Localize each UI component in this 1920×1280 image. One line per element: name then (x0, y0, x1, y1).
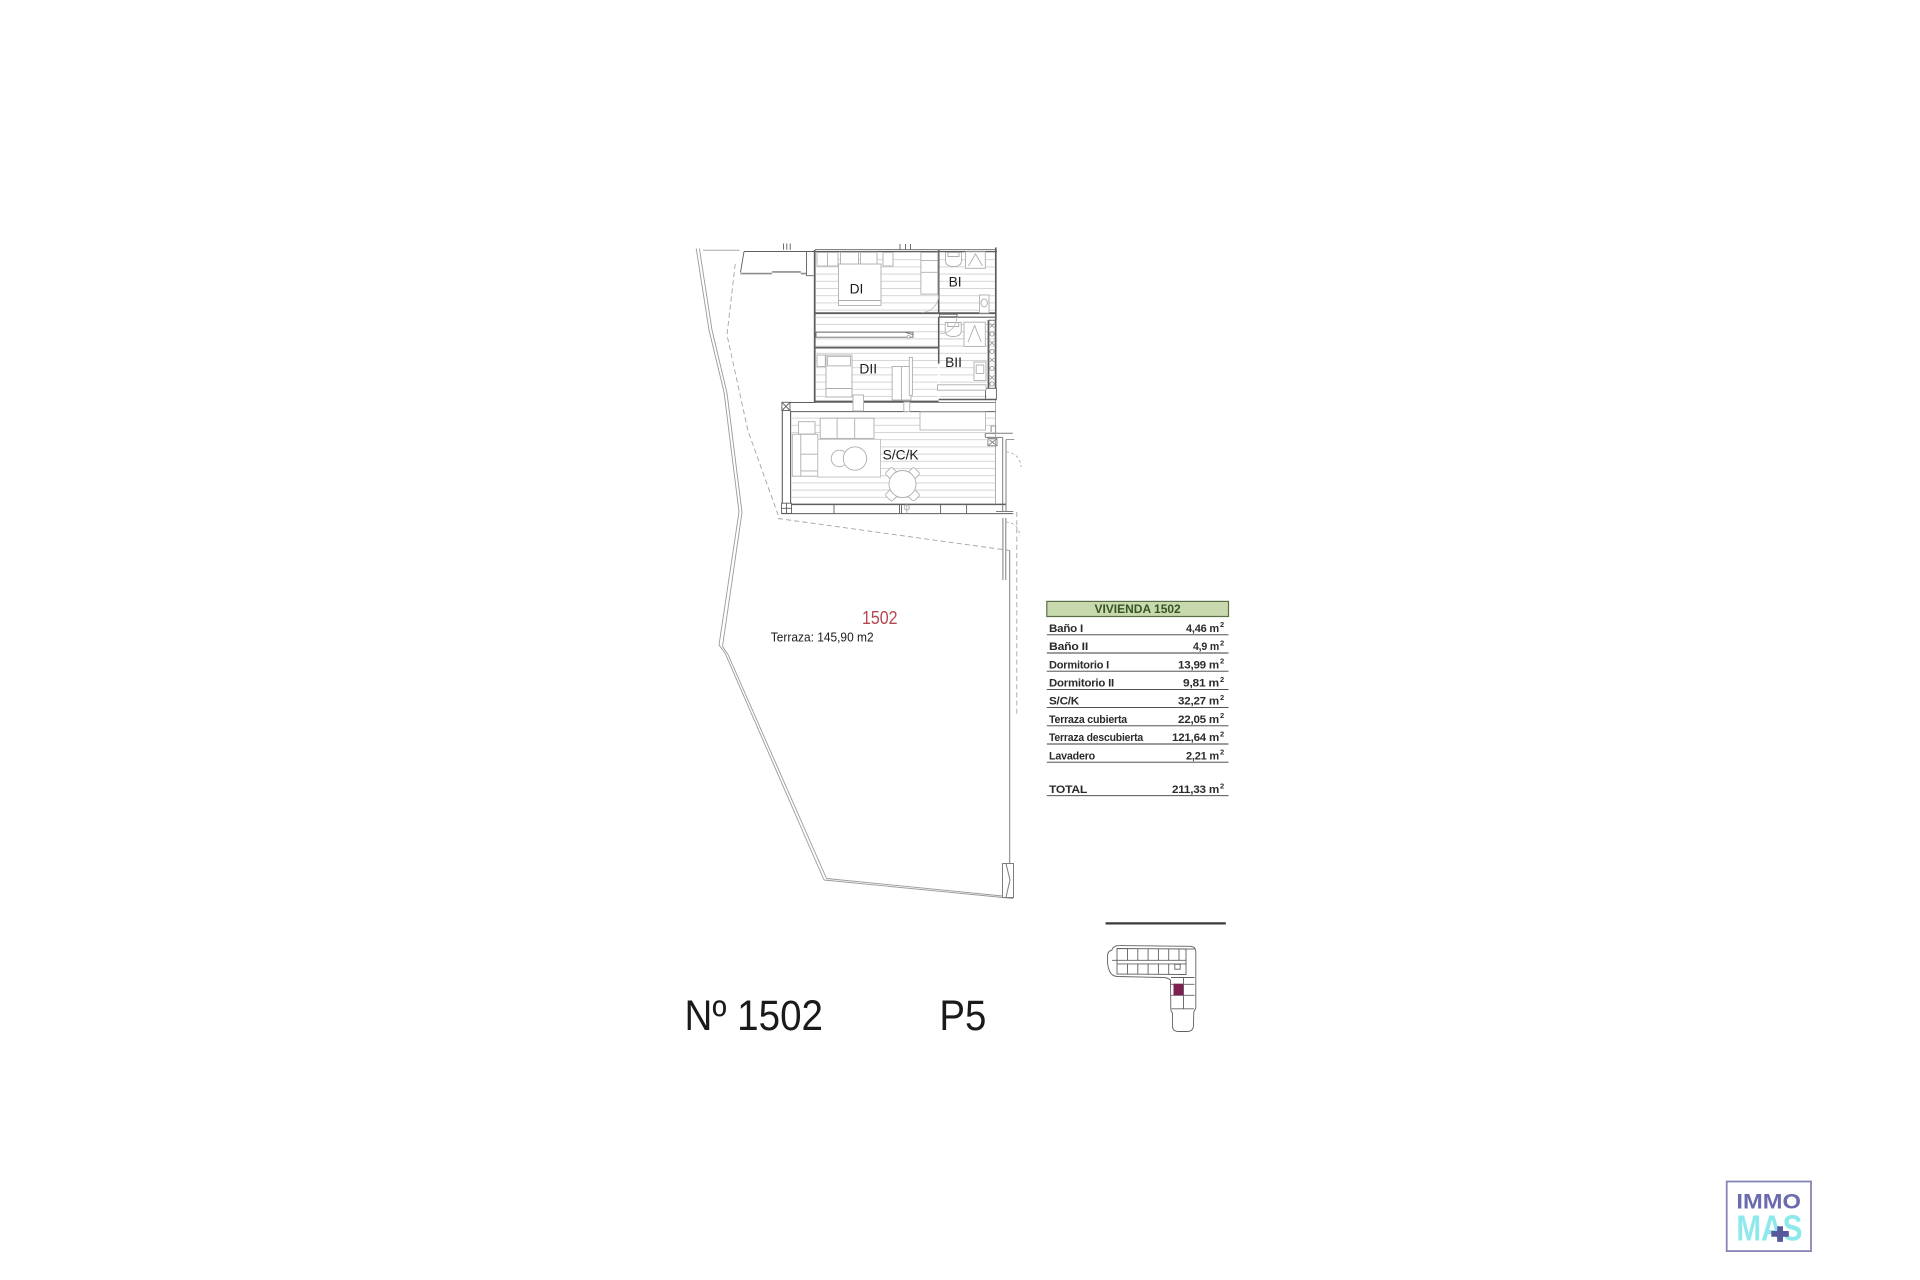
svg-text:VIVIENDA 1502: VIVIENDA 1502 (1094, 602, 1181, 616)
svg-text:1502: 1502 (862, 607, 898, 628)
svg-text:DI: DI (850, 281, 864, 296)
svg-text:2: 2 (1220, 729, 1224, 738)
svg-text:Dormitorio I: Dormitorio I (1049, 659, 1109, 671)
svg-text:Terraza cubierta: Terraza cubierta (1049, 714, 1128, 726)
svg-text:2: 2 (1220, 782, 1224, 791)
svg-text:2: 2 (1220, 711, 1224, 720)
svg-text:Baño II: Baño II (1049, 641, 1088, 653)
svg-text:13,99 m: 13,99 m (1178, 659, 1219, 671)
svg-text:2: 2 (1220, 693, 1224, 702)
svg-text:2: 2 (1220, 638, 1224, 647)
svg-text:2: 2 (1220, 620, 1224, 629)
svg-text:BII: BII (945, 355, 962, 370)
svg-text:S/C/K: S/C/K (883, 448, 920, 463)
svg-text:Nº 1502: Nº 1502 (685, 992, 824, 1040)
svg-text:121,64 m: 121,64 m (1172, 732, 1219, 744)
svg-text:MAS: MAS (1736, 1207, 1802, 1248)
svg-text:4,46 m: 4,46 m (1186, 623, 1219, 635)
svg-text:Baño I: Baño I (1049, 623, 1083, 635)
svg-text:Terraza: 145,90 m2: Terraza: 145,90 m2 (771, 629, 874, 644)
svg-text:DII: DII (859, 362, 877, 377)
svg-text:32,27 m: 32,27 m (1178, 696, 1219, 708)
svg-text:P5: P5 (939, 992, 986, 1040)
svg-text:2,21 m: 2,21 m (1186, 750, 1219, 762)
svg-text:Dormitorio II: Dormitorio II (1049, 678, 1114, 690)
svg-text:2: 2 (1220, 675, 1224, 684)
svg-text:TOTAL: TOTAL (1049, 784, 1088, 796)
svg-text:22,05 m: 22,05 m (1178, 714, 1219, 726)
svg-text:BI: BI (949, 274, 962, 289)
svg-text:2: 2 (1220, 748, 1224, 757)
svg-text:9,81 m: 9,81 m (1183, 678, 1219, 690)
svg-text:S/C/K: S/C/K (1049, 696, 1079, 708)
svg-text:4,9 m: 4,9 m (1193, 641, 1219, 653)
svg-text:Terraza descubierta: Terraza descubierta (1049, 732, 1144, 744)
svg-text:2: 2 (1220, 657, 1224, 666)
svg-text:211,33 m: 211,33 m (1172, 784, 1219, 796)
svg-text:Lavadero: Lavadero (1049, 750, 1096, 762)
